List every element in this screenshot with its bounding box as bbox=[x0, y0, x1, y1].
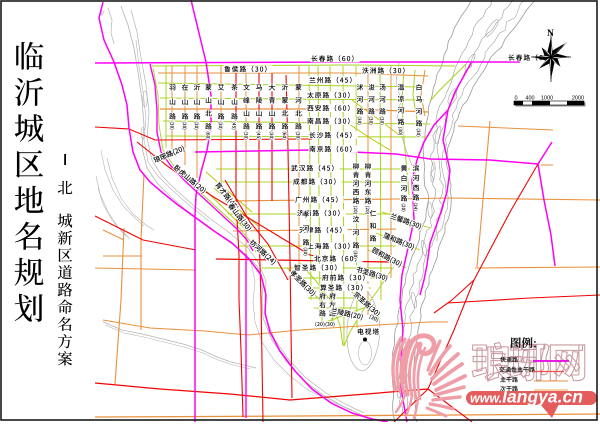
svg-text:0: 0 bbox=[514, 96, 517, 102]
svg-text:400: 400 bbox=[525, 96, 534, 102]
svg-text:2000: 2000 bbox=[572, 96, 584, 102]
svg-text:N: N bbox=[547, 29, 554, 39]
svg-text:1000: 1000 bbox=[541, 96, 553, 102]
